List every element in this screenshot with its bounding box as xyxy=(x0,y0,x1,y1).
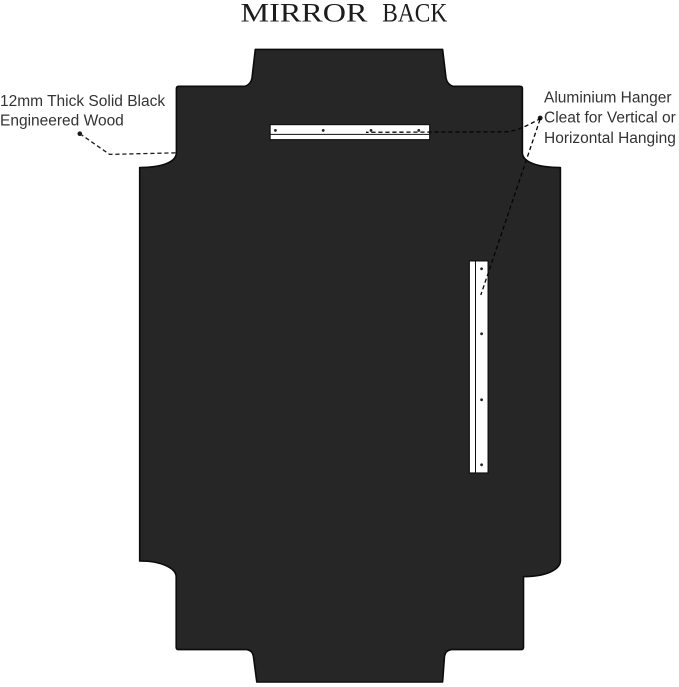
svg-text:12mm Thick Solid Black: 12mm Thick Solid Black xyxy=(0,93,165,110)
svg-text:Horizontal Hanging: Horizontal Hanging xyxy=(544,130,676,147)
svg-text:BACK: BACK xyxy=(382,0,447,28)
svg-text:Cleat for Vertical or: Cleat for Vertical or xyxy=(544,110,676,127)
svg-text:Engineered Wood: Engineered Wood xyxy=(0,113,124,130)
svg-text:MIRROR: MIRROR xyxy=(241,0,368,28)
svg-text:Aluminium Hanger: Aluminium Hanger xyxy=(544,89,672,106)
